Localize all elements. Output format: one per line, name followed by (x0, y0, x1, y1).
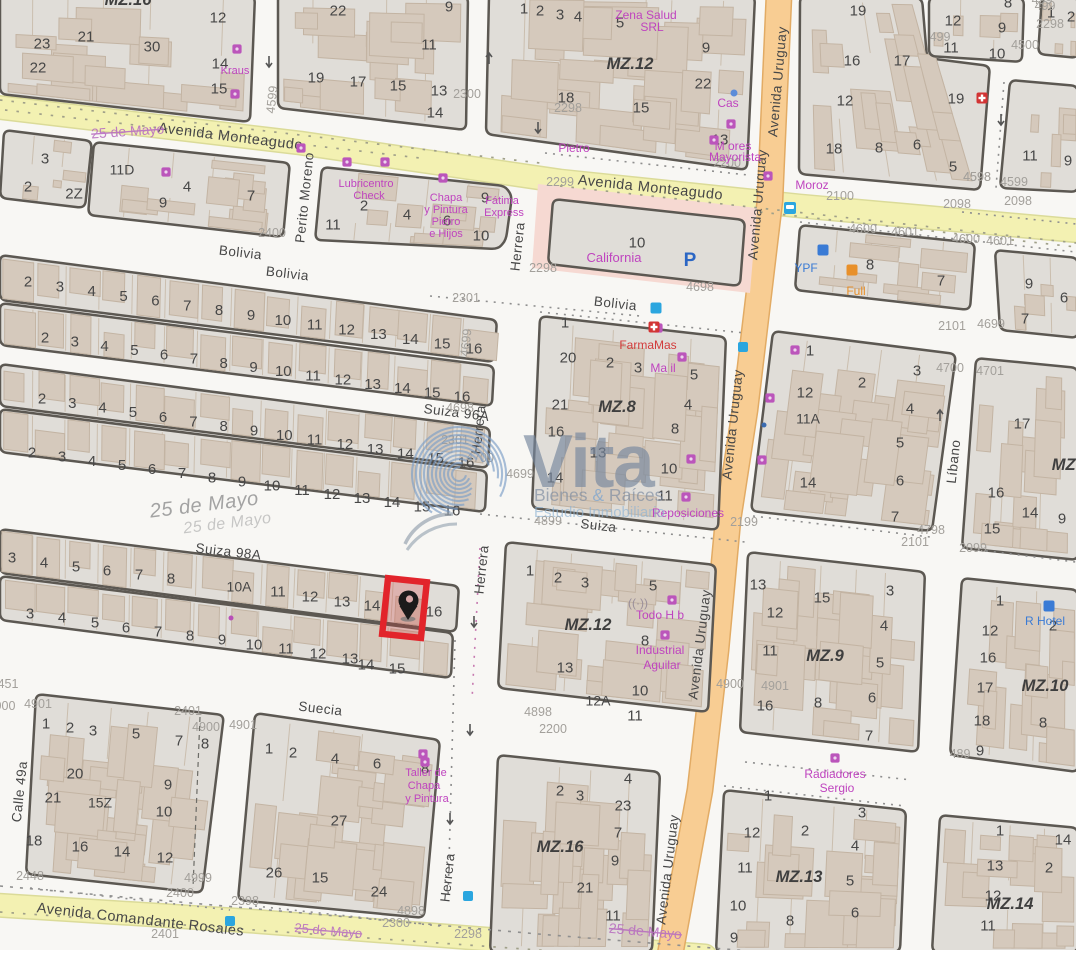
svg-text:8: 8 (215, 302, 223, 319)
svg-text:4: 4 (183, 179, 191, 196)
svg-text:5: 5 (690, 367, 698, 384)
svg-text:18: 18 (826, 141, 843, 158)
svg-text:2: 2 (289, 745, 297, 762)
svg-text:4700: 4700 (936, 361, 964, 375)
svg-text:11: 11 (737, 860, 753, 877)
svg-text:4898: 4898 (524, 705, 552, 719)
svg-text:13: 13 (342, 651, 359, 668)
svg-text:4699: 4699 (977, 317, 1005, 331)
svg-text:499: 499 (1035, 0, 1056, 13)
svg-text:Aguilar: Aguilar (643, 658, 680, 672)
svg-text:12: 12 (337, 436, 354, 453)
svg-text:15: 15 (434, 336, 451, 353)
svg-text:10A: 10A (227, 579, 253, 595)
svg-text:9: 9 (976, 743, 984, 760)
svg-text:16: 16 (988, 485, 1005, 502)
svg-text:Check: Check (353, 190, 385, 202)
svg-text:4: 4 (40, 555, 48, 572)
svg-text:3: 3 (26, 606, 34, 623)
svg-text:1: 1 (526, 563, 534, 580)
svg-text:12: 12 (310, 646, 327, 663)
svg-text:2: 2 (41, 330, 49, 347)
svg-text:8: 8 (786, 913, 794, 930)
svg-text:3: 3 (556, 7, 564, 24)
svg-text:22: 22 (330, 3, 347, 20)
svg-text:2100: 2100 (826, 189, 854, 203)
svg-text:19: 19 (850, 3, 867, 20)
svg-text:15: 15 (984, 521, 1001, 538)
svg-text:489: 489 (950, 747, 971, 761)
svg-text:2: 2 (536, 3, 544, 20)
svg-text:4698: 4698 (686, 280, 714, 294)
svg-text:FarmaMas: FarmaMas (619, 338, 676, 352)
svg-text:4: 4 (880, 618, 888, 635)
svg-text:23: 23 (615, 798, 632, 815)
svg-text:MZ.16: MZ.16 (105, 0, 153, 9)
svg-text:MZ.14: MZ.14 (987, 895, 1034, 913)
svg-text:4: 4 (684, 397, 692, 414)
svg-text:15: 15 (389, 661, 406, 678)
svg-text:18: 18 (26, 833, 43, 850)
svg-text:R Hotel: R Hotel (1025, 614, 1065, 628)
svg-text:8: 8 (167, 571, 175, 588)
svg-text:5: 5 (91, 615, 99, 632)
svg-text:2298: 2298 (454, 927, 482, 941)
svg-text:5: 5 (896, 435, 904, 452)
svg-text:2448: 2448 (16, 869, 44, 883)
svg-text:2200: 2200 (539, 722, 567, 736)
svg-text:6: 6 (913, 137, 921, 154)
svg-text:4901: 4901 (24, 697, 52, 711)
svg-text:10: 10 (730, 898, 747, 915)
svg-text:MZ.16: MZ.16 (537, 838, 585, 856)
svg-text:Pietro: Pietro (558, 141, 590, 155)
svg-text:Kraus: Kraus (221, 65, 250, 77)
svg-text:11: 11 (325, 217, 341, 234)
svg-text:1: 1 (996, 823, 1004, 840)
svg-text:4900: 4900 (192, 720, 220, 734)
svg-text:14: 14 (364, 598, 381, 615)
svg-text:11: 11 (305, 367, 321, 384)
svg-text:2: 2 (556, 783, 564, 800)
svg-text:2098: 2098 (1004, 194, 1032, 208)
svg-text:12: 12 (797, 385, 814, 402)
svg-text:4: 4 (331, 751, 339, 768)
svg-text:4: 4 (58, 610, 66, 627)
svg-text:8: 8 (220, 355, 228, 372)
svg-text:7: 7 (891, 509, 899, 526)
svg-text:3: 3 (58, 449, 66, 466)
svg-text:3: 3 (68, 395, 76, 412)
svg-text:21: 21 (577, 880, 594, 897)
svg-text:7: 7 (1021, 311, 1029, 328)
svg-text:21: 21 (552, 397, 569, 414)
svg-text:10: 10 (629, 235, 646, 252)
svg-text:13: 13 (364, 376, 381, 393)
svg-text:11: 11 (980, 918, 996, 935)
svg-text:4: 4 (851, 838, 859, 855)
svg-text:5: 5 (72, 559, 80, 576)
svg-text:4999: 4999 (184, 871, 212, 885)
svg-text:20: 20 (67, 766, 84, 783)
svg-text:8: 8 (875, 140, 883, 157)
svg-text:2101: 2101 (938, 319, 966, 333)
svg-text:9: 9 (249, 359, 257, 376)
svg-text:8: 8 (1039, 715, 1047, 732)
svg-text:4701: 4701 (976, 364, 1004, 378)
svg-text:6: 6 (103, 563, 111, 580)
svg-text:2401: 2401 (151, 927, 179, 941)
svg-text:3: 3 (886, 583, 894, 600)
svg-text:14: 14 (384, 494, 401, 511)
svg-text:Chapa: Chapa (430, 192, 463, 204)
svg-text:12: 12 (338, 321, 355, 338)
svg-text:10: 10 (632, 683, 649, 700)
svg-text:Mayorista: Mayorista (709, 150, 761, 164)
svg-text:3: 3 (634, 360, 642, 377)
svg-text:12A: 12A (586, 693, 612, 709)
svg-text:15: 15 (414, 498, 431, 515)
svg-text:California: California (587, 250, 643, 265)
svg-text:4: 4 (88, 283, 96, 300)
svg-text:9: 9 (250, 423, 258, 440)
svg-text:9: 9 (1025, 276, 1033, 293)
svg-text:Cas: Cas (717, 96, 738, 110)
svg-text:2: 2 (24, 179, 32, 196)
svg-text:4598: 4598 (963, 170, 991, 184)
svg-text:10: 10 (661, 461, 678, 478)
svg-text:6: 6 (159, 409, 167, 426)
svg-text:19: 19 (948, 91, 965, 108)
svg-text:11: 11 (278, 641, 294, 658)
svg-text:11: 11 (421, 37, 437, 54)
svg-text:19: 19 (308, 70, 325, 87)
svg-text:Fátima: Fátima (485, 195, 520, 207)
svg-text:6: 6 (148, 461, 156, 478)
svg-text:14: 14 (114, 844, 131, 861)
svg-text:13: 13 (354, 490, 371, 507)
svg-text:3: 3 (71, 334, 79, 351)
svg-text:MZ.13: MZ.13 (776, 868, 823, 886)
svg-text:2Z: 2Z (65, 186, 83, 203)
svg-text:4: 4 (624, 771, 632, 788)
svg-text:15: 15 (390, 78, 407, 95)
svg-text:8: 8 (1004, 0, 1012, 12)
svg-text:Chapa: Chapa (408, 780, 441, 792)
svg-text:9: 9 (238, 474, 246, 491)
svg-text:10: 10 (276, 427, 293, 444)
svg-text:5: 5 (132, 726, 140, 743)
svg-text:16: 16 (426, 604, 443, 621)
svg-text:9: 9 (1064, 153, 1072, 170)
svg-text:8: 8 (201, 736, 209, 753)
svg-text:8: 8 (866, 257, 874, 274)
svg-text:4601: 4601 (891, 225, 919, 239)
svg-text:SRL: SRL (640, 20, 664, 34)
svg-text:2199: 2199 (730, 515, 758, 529)
svg-text:9: 9 (611, 853, 619, 870)
svg-text:1: 1 (42, 716, 50, 733)
svg-text:20: 20 (560, 350, 577, 367)
svg-text:9: 9 (998, 20, 1006, 37)
svg-text:6: 6 (151, 293, 159, 310)
svg-text:Bienes & Raíces: Bienes & Raíces (534, 485, 664, 505)
svg-text:1: 1 (806, 343, 814, 360)
svg-text:5: 5 (949, 159, 957, 176)
svg-text:16: 16 (980, 650, 997, 667)
svg-text:2398: 2398 (231, 894, 259, 908)
svg-text:2300: 2300 (382, 916, 410, 930)
svg-text:900: 900 (0, 699, 15, 713)
svg-text:4901: 4901 (761, 679, 789, 693)
svg-text:7: 7 (865, 728, 873, 745)
svg-text:5: 5 (119, 288, 127, 305)
svg-text:Moroz: Moroz (795, 178, 828, 192)
svg-text:2299: 2299 (546, 175, 574, 189)
svg-text:14: 14 (394, 380, 411, 397)
svg-text:30: 30 (144, 39, 161, 56)
svg-text:Estudio Inmobiliario: Estudio Inmobiliario (534, 504, 665, 521)
svg-text:2400: 2400 (166, 886, 194, 900)
svg-text:6: 6 (896, 473, 904, 490)
svg-text:15: 15 (211, 81, 228, 98)
svg-text:13: 13 (370, 326, 387, 343)
svg-text:Todo H b: Todo H b (636, 608, 684, 622)
svg-text:2298: 2298 (554, 101, 582, 115)
svg-text:2300: 2300 (453, 87, 481, 101)
svg-text:8: 8 (814, 695, 822, 712)
svg-text:2: 2 (554, 570, 562, 587)
svg-text:10: 10 (275, 312, 292, 329)
svg-text:22: 22 (30, 60, 47, 77)
svg-text:21: 21 (78, 29, 95, 46)
svg-text:12: 12 (767, 605, 784, 622)
svg-text:1: 1 (561, 315, 569, 332)
svg-text:24: 24 (371, 884, 388, 901)
svg-text:2: 2 (28, 445, 36, 462)
svg-text:9: 9 (445, 0, 453, 16)
svg-text:11: 11 (307, 432, 323, 449)
svg-text:3: 3 (913, 363, 921, 380)
svg-text:6: 6 (373, 756, 381, 773)
svg-text:10: 10 (156, 804, 173, 821)
svg-text:11: 11 (627, 708, 643, 725)
svg-text:16: 16 (844, 53, 861, 70)
svg-text:13: 13 (557, 660, 574, 677)
svg-text:17: 17 (350, 74, 367, 91)
svg-text:12: 12 (335, 372, 352, 389)
svg-text:11D: 11D (110, 162, 135, 178)
svg-text:2: 2 (66, 720, 74, 737)
svg-text:9: 9 (730, 930, 738, 947)
svg-text:7: 7 (614, 825, 622, 842)
svg-text:2400: 2400 (258, 226, 286, 240)
svg-text:9: 9 (1058, 511, 1066, 528)
svg-text:MZ.12: MZ.12 (565, 616, 612, 634)
svg-text:27: 27 (331, 813, 348, 830)
svg-text:Ma il: Ma il (650, 361, 675, 375)
svg-text:17: 17 (894, 53, 911, 70)
svg-text:e Hijos: e Hijos (429, 228, 463, 240)
svg-text:2: 2 (1067, 9, 1075, 26)
svg-text:8: 8 (208, 469, 216, 486)
svg-text:5: 5 (846, 873, 854, 890)
svg-text:8: 8 (220, 418, 228, 435)
svg-text:18: 18 (974, 713, 991, 730)
svg-text:4: 4 (906, 401, 914, 418)
svg-text:Lubricentro: Lubricentro (338, 178, 393, 190)
svg-text:13: 13 (431, 83, 448, 100)
svg-text:451: 451 (0, 677, 18, 691)
svg-text:7: 7 (135, 567, 143, 584)
svg-text:2: 2 (38, 391, 46, 408)
svg-text:2101: 2101 (901, 535, 929, 549)
svg-text:16: 16 (757, 698, 774, 715)
svg-text:4900: 4900 (716, 677, 744, 691)
svg-text:9: 9 (702, 40, 710, 57)
svg-text:11: 11 (294, 482, 310, 499)
svg-text:4601: 4601 (986, 234, 1014, 248)
svg-text:4901: 4901 (229, 718, 257, 732)
svg-text:P: P (684, 250, 697, 271)
svg-text:6: 6 (160, 346, 168, 363)
svg-text:11: 11 (270, 584, 286, 601)
svg-text:Taller de: Taller de (405, 767, 447, 779)
svg-text:15: 15 (633, 100, 650, 117)
svg-text:499: 499 (930, 30, 951, 44)
svg-text:y Pintura: y Pintura (405, 793, 449, 805)
svg-text:Full: Full (846, 284, 865, 298)
svg-text:15Z: 15Z (88, 795, 113, 811)
svg-text:4: 4 (574, 9, 582, 26)
svg-text:15: 15 (312, 870, 329, 887)
svg-text:4698: 4698 (446, 401, 474, 415)
svg-text:12: 12 (210, 10, 227, 27)
svg-text:7: 7 (183, 297, 191, 314)
svg-text:26: 26 (266, 865, 283, 882)
svg-text:5: 5 (118, 457, 126, 474)
svg-text:3: 3 (41, 151, 49, 168)
svg-text:13: 13 (750, 577, 767, 594)
svg-text:11: 11 (1022, 148, 1038, 165)
svg-text:11: 11 (307, 317, 323, 334)
svg-text:4699: 4699 (458, 328, 475, 357)
svg-text:4: 4 (403, 207, 411, 224)
svg-text:11A: 11A (796, 411, 821, 427)
svg-text:4: 4 (100, 338, 108, 355)
svg-text:3: 3 (56, 278, 64, 295)
svg-text:5: 5 (649, 578, 657, 595)
svg-text:8: 8 (186, 628, 194, 645)
svg-text:4599: 4599 (264, 85, 281, 114)
svg-text:14: 14 (1055, 832, 1072, 849)
svg-text:MZ.8: MZ.8 (598, 398, 636, 416)
svg-text:14: 14 (800, 475, 817, 492)
svg-text:2: 2 (606, 355, 614, 372)
svg-text:YPF: YPF (794, 261, 817, 275)
svg-text:MZ.: MZ. (1052, 456, 1076, 474)
svg-text:16: 16 (72, 839, 89, 856)
svg-text:1: 1 (996, 593, 1004, 610)
svg-text:((·)): ((·)) (628, 596, 648, 610)
svg-text:11: 11 (762, 643, 778, 660)
svg-text:15: 15 (814, 590, 831, 607)
svg-text:14: 14 (1022, 505, 1039, 522)
svg-text:2298: 2298 (1036, 17, 1064, 31)
svg-text:4: 4 (88, 453, 96, 470)
svg-text:6: 6 (851, 905, 859, 922)
svg-text:12: 12 (945, 13, 962, 30)
svg-text:10: 10 (989, 46, 1006, 63)
svg-text:6: 6 (868, 690, 876, 707)
svg-text:14: 14 (397, 445, 414, 462)
svg-text:MZ.12: MZ.12 (607, 55, 654, 73)
svg-text:Radiadores: Radiadores (804, 767, 865, 781)
svg-text:13: 13 (367, 441, 384, 458)
svg-text:12: 12 (157, 850, 174, 867)
svg-text:Pietro: Pietro (432, 216, 461, 228)
svg-text:10: 10 (246, 637, 263, 654)
svg-text:5: 5 (129, 404, 137, 421)
svg-text:Industrial: Industrial (636, 643, 685, 657)
svg-text:1: 1 (265, 741, 273, 758)
svg-text:14: 14 (402, 331, 419, 348)
svg-text:12: 12 (744, 825, 761, 842)
svg-text:Express: Express (484, 207, 524, 219)
svg-text:8: 8 (671, 421, 679, 438)
svg-text:4600: 4600 (952, 232, 980, 246)
svg-text:13: 13 (334, 594, 351, 611)
svg-text:7: 7 (190, 351, 198, 368)
svg-text:7: 7 (175, 733, 183, 750)
svg-text:9: 9 (247, 307, 255, 324)
svg-text:1: 1 (520, 1, 528, 18)
svg-text:7: 7 (154, 624, 162, 641)
svg-text:4600: 4600 (849, 222, 877, 236)
svg-text:5: 5 (876, 655, 884, 672)
svg-text:12: 12 (982, 623, 999, 640)
svg-text:3: 3 (576, 788, 584, 805)
svg-text:2099: 2099 (959, 541, 987, 555)
svg-text:23: 23 (34, 36, 51, 53)
svg-text:14: 14 (358, 657, 375, 674)
svg-text:17: 17 (977, 680, 994, 697)
svg-text:4599: 4599 (1000, 175, 1028, 189)
svg-text:15: 15 (424, 384, 441, 401)
svg-text:2098: 2098 (943, 197, 971, 211)
svg-text:10: 10 (473, 228, 490, 245)
svg-text:21: 21 (45, 790, 62, 807)
svg-text:y Pintura: y Pintura (424, 204, 468, 216)
svg-text:9: 9 (159, 195, 167, 212)
svg-text:22: 22 (695, 76, 712, 93)
svg-text:Sergio: Sergio (820, 781, 855, 795)
svg-text:4500: 4500 (1011, 38, 1039, 52)
svg-text:9: 9 (218, 632, 226, 649)
svg-text:2: 2 (24, 274, 32, 291)
svg-text:2298: 2298 (529, 261, 557, 275)
svg-text:5: 5 (130, 342, 138, 359)
svg-text:9: 9 (164, 777, 172, 794)
svg-text:MZ.10: MZ.10 (1022, 677, 1070, 695)
svg-text:7: 7 (178, 465, 186, 482)
svg-text:2: 2 (801, 823, 809, 840)
svg-text:7: 7 (247, 188, 255, 205)
svg-text:7: 7 (189, 413, 197, 430)
svg-text:3: 3 (858, 805, 866, 822)
svg-text:2301: 2301 (452, 291, 480, 305)
svg-text:4: 4 (98, 400, 106, 417)
